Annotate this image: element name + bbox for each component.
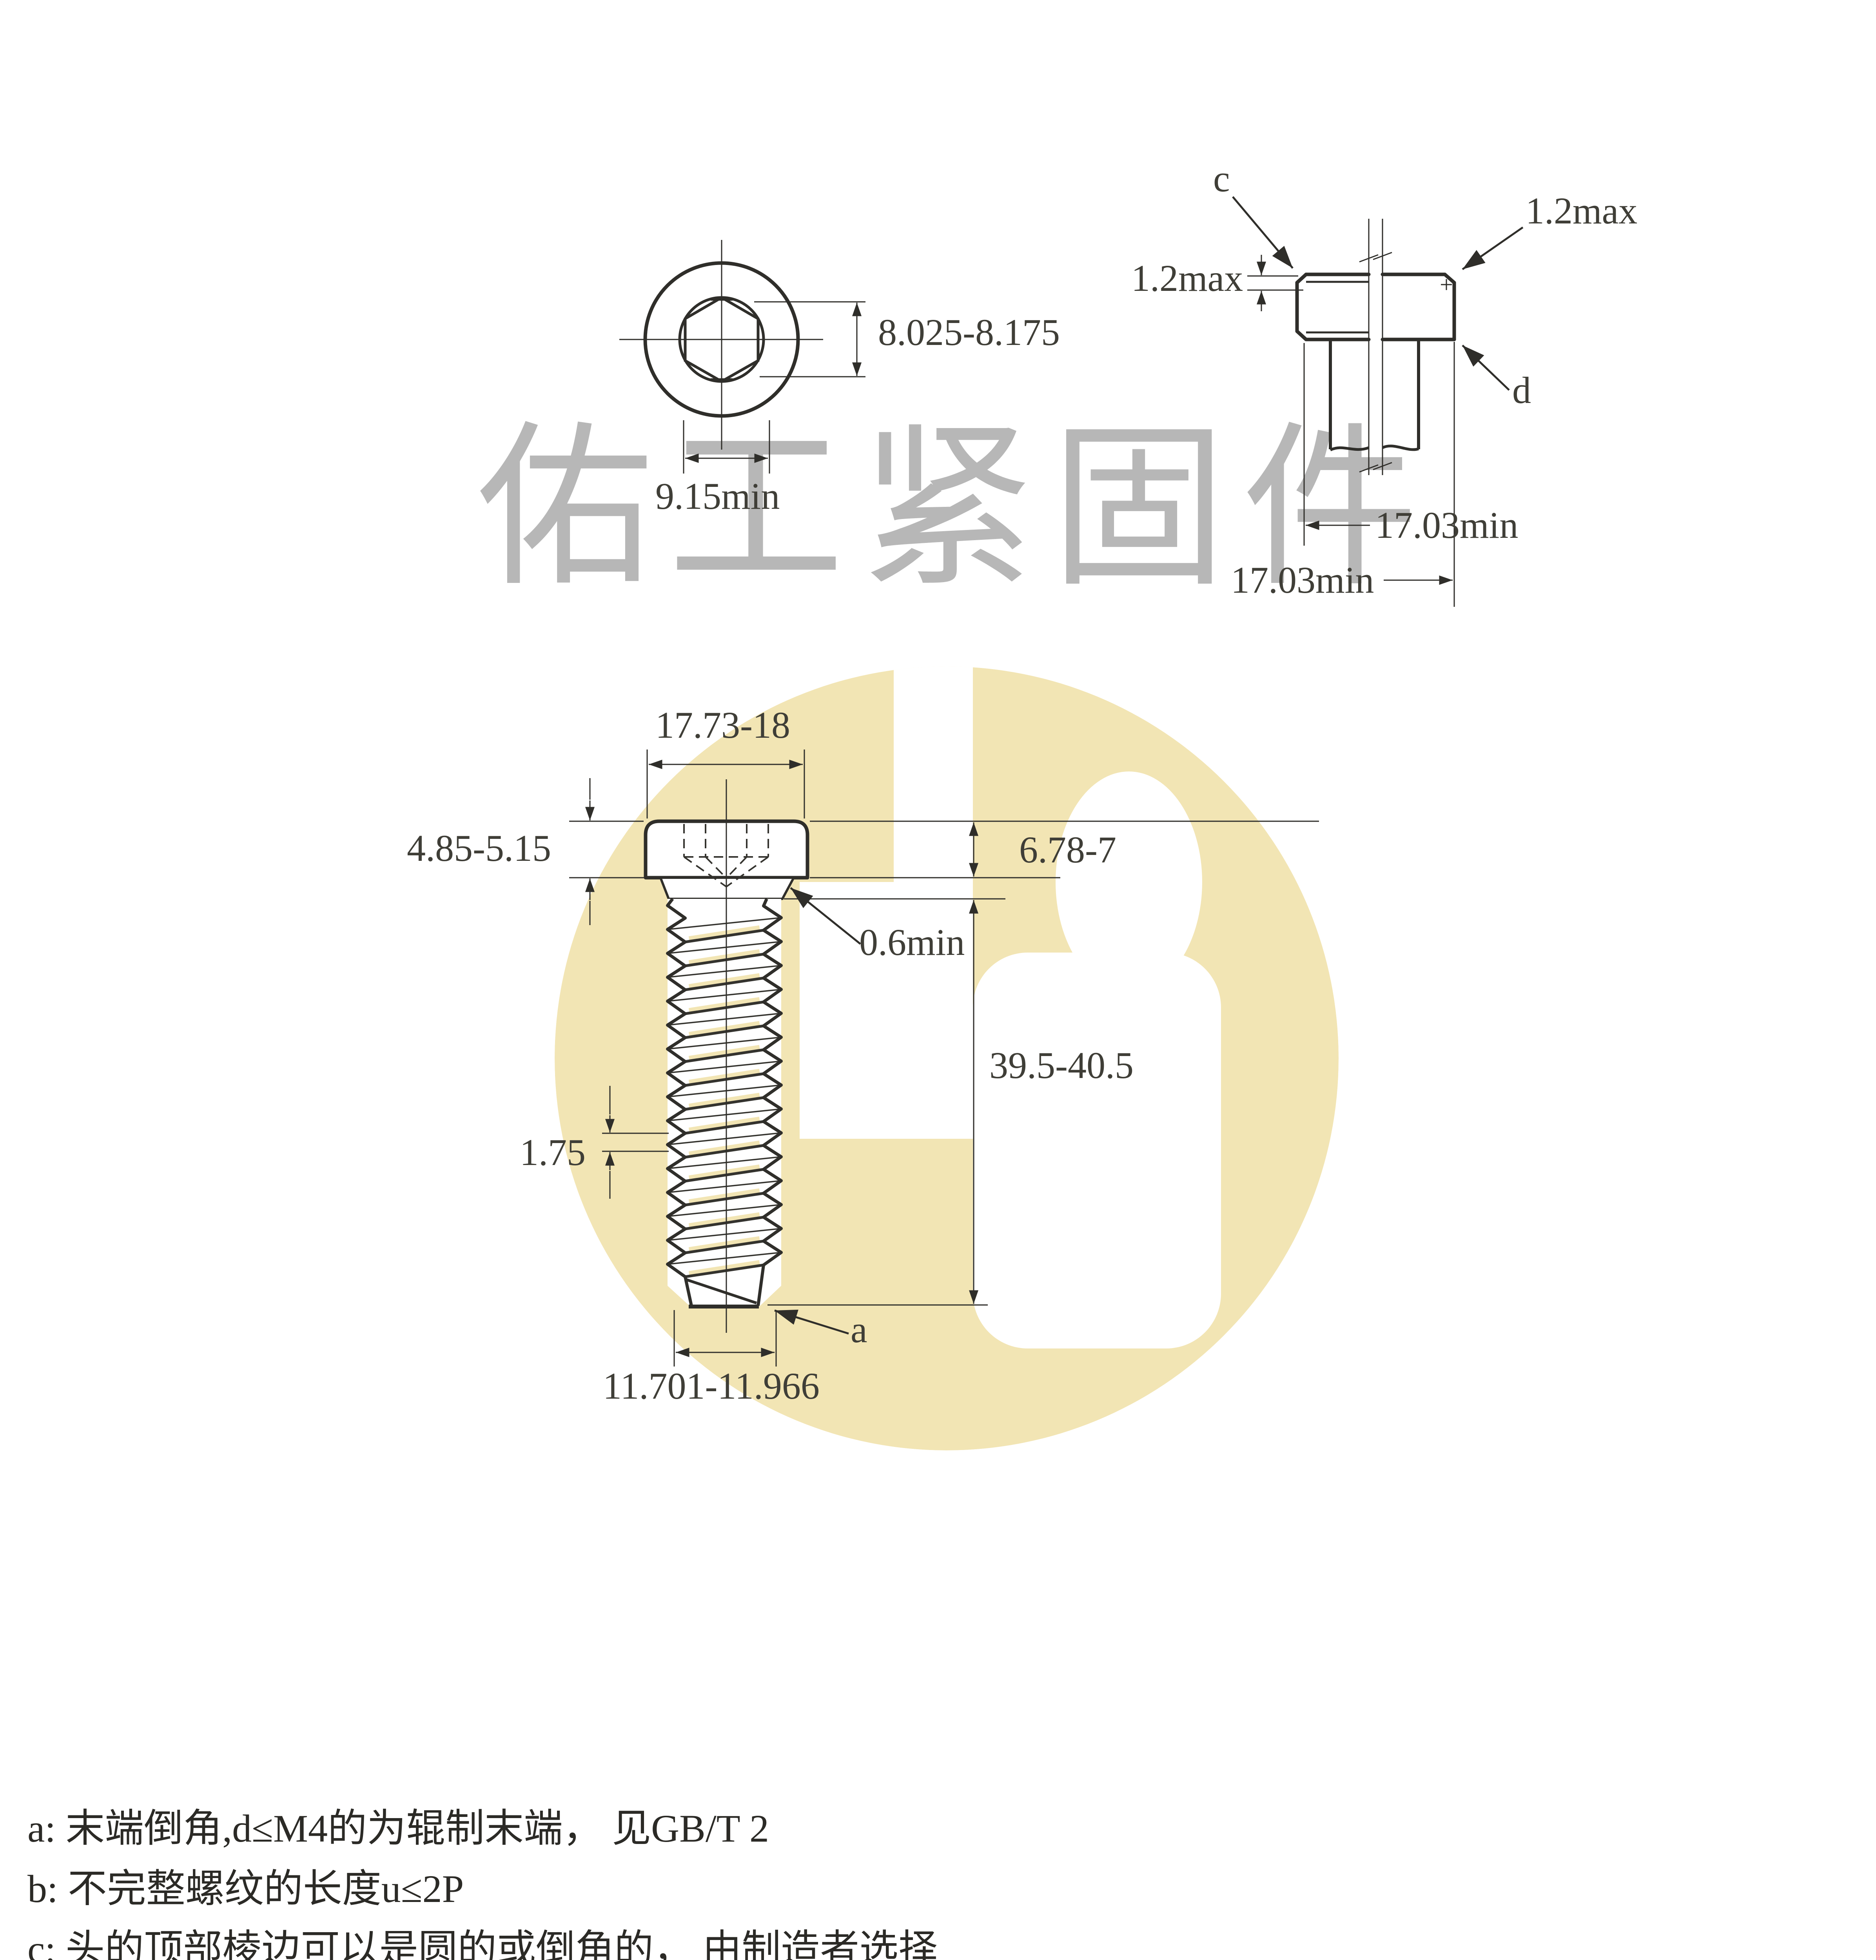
dim-head-height: 4.85-5.15 xyxy=(407,827,551,869)
label-d: d xyxy=(1512,369,1531,411)
dim-socket-width: 9.15min xyxy=(655,475,780,517)
dim-head-height-total: 6.78-7 xyxy=(1019,829,1116,871)
leader-d xyxy=(1462,345,1509,390)
label-c: c xyxy=(1213,158,1230,200)
dim-fillet: 0.6min xyxy=(859,921,965,963)
dim-length: 39.5-40.5 xyxy=(989,1044,1134,1086)
leader-chamfer-right xyxy=(1462,227,1523,269)
notes: a: 末端倒角,d≤M4的为辊制末端， 见GB/T 2 b: 不完整螺纹的长度u… xyxy=(27,1807,938,1960)
note-c: c: 头的顶部棱边可以是圆的或倒角的， 由制造者选择 xyxy=(27,1927,938,1960)
dim-half-right: 17.03min xyxy=(1231,559,1374,601)
dim-socket-height: 8.025-8.175 xyxy=(878,311,1060,353)
dim-chamfer-right: 1.2max xyxy=(1526,190,1637,232)
side-leaders xyxy=(1233,197,1523,390)
dim-thread-diameter: 11.701-11.966 xyxy=(603,1365,820,1407)
dim-half-left: 17.03min xyxy=(1375,504,1518,546)
note-a: a: 末端倒角,d≤M4的为辊制末端， 见GB/T 2 xyxy=(27,1807,769,1850)
note-b: b: 不完整螺纹的长度u≤2P xyxy=(27,1867,464,1911)
dim-head-width: 17.73-18 xyxy=(655,704,790,746)
head-outline xyxy=(1297,274,1454,339)
dim-chamfer-left: 1.2max xyxy=(1131,257,1243,299)
label-a: a xyxy=(851,1308,867,1350)
screw-washer-face xyxy=(660,878,794,899)
logo-gap xyxy=(973,953,1221,1348)
dim-pitch: 1.75 xyxy=(520,1131,586,1173)
drawing-canvas: 佑工紧固件 xyxy=(0,0,1876,1960)
